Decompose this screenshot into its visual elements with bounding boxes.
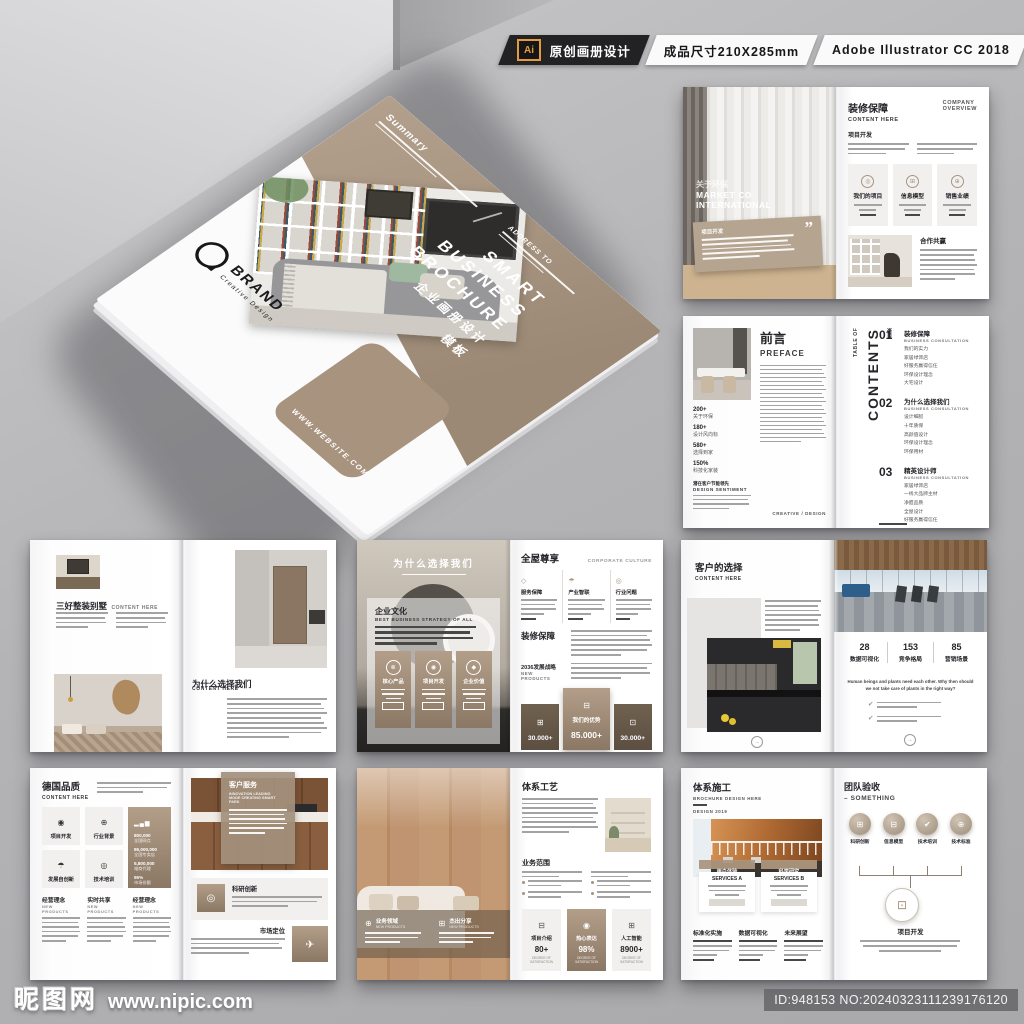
check-lines-2	[877, 716, 941, 725]
toc-big-label: CONTENTS	[865, 328, 881, 516]
scene: Ai 原创画册设计 成品尺寸210X285mm Adobe Illustrato…	[0, 0, 1024, 1024]
living-room-small-photo	[605, 798, 651, 852]
ribbon-size-tag: 成品尺寸210X285mm	[645, 35, 818, 65]
person-chat-icon: ◉	[583, 921, 590, 930]
col-3-title: 经营理念	[133, 895, 171, 904]
check-lines-1	[877, 702, 941, 711]
reading-chair-photo	[848, 235, 912, 287]
research-target-icon: ◎	[197, 884, 225, 912]
card-1-label: 核心产品	[375, 677, 411, 685]
craft-title: 体系工艺	[522, 780, 651, 793]
card-2-lines	[422, 689, 446, 700]
header-ribbon: Ai 原创画册设计 成品尺寸210X285mm Adobe Illustrato…	[504, 35, 1023, 65]
preface-page: 200+ 关于环保 180+ 设计风向标 580+ 选择到家 150% 科技化家…	[683, 316, 836, 528]
why-subtitle: CONTENT HERE	[192, 686, 239, 692]
toc-3-title: 精英设计师	[904, 465, 969, 475]
monitor-icon: ⊡	[629, 718, 636, 727]
partner-label: 合作共赢	[920, 235, 977, 245]
toc-1-title: 装修保障	[904, 328, 969, 338]
adv-col-2: 产业智联	[568, 588, 604, 596]
original-design-label: 原创画册设计	[550, 41, 631, 60]
team-icon: ◉	[58, 818, 65, 827]
services-a-button	[709, 899, 745, 906]
toc-2-bullet-5: 环保用材	[904, 448, 969, 455]
software-label: Adobe Illustrator CC 2018	[832, 43, 1010, 57]
check-item-2: ✔	[868, 714, 941, 725]
customer-service-page: 客户服务 INNOVATION LEADING MODE CREATING SM…	[183, 768, 336, 980]
toc-1-bullet-2: 家居绿饰店	[904, 354, 969, 361]
construction-sub1: BROCHURE DESIGN HERE	[693, 796, 822, 801]
network-icon: ⊕	[365, 919, 372, 928]
toc-1-bullet-4: 环保设计理念	[904, 371, 969, 378]
tree-connector	[844, 866, 977, 888]
sat-1-label: 项目介绍	[522, 935, 561, 942]
hierarchy-icon: ⊞	[628, 921, 635, 930]
team-icon-3-label: 技术培训	[911, 838, 943, 845]
stat-l3: 营销场景	[934, 654, 979, 663]
toc-3-bullet-1: 家居绿饰店	[904, 482, 969, 489]
caption-line-1: Human beings and plants need each other.…	[848, 679, 974, 684]
sat-2-label: 热心表达	[567, 935, 606, 942]
col-3-lines	[133, 917, 171, 942]
col-2-title: 实时共享	[87, 895, 125, 904]
villa-lines-b	[116, 612, 168, 631]
advantage-corner: CORPORATE CULTURE	[588, 559, 652, 564]
band-1-lines	[365, 932, 421, 943]
share-icon: ⊞	[439, 919, 446, 928]
page-arrow-button-2: →	[904, 734, 916, 746]
preface-credit: CREATIVE / DESIGN	[760, 511, 826, 516]
box-4-label: 技术培训	[85, 876, 123, 883]
project-icon: ◎	[861, 175, 874, 188]
feature-lines-2	[899, 204, 927, 211]
toc-3-bullet-2: 一线大品牌主材	[904, 490, 969, 497]
icon-box-project: ◉ 项目开发	[42, 807, 80, 845]
sentiment-block: 潜在客户节能领先 DESIGN SENTIMENT	[693, 481, 751, 509]
card-1-button	[382, 702, 404, 710]
spread-customer-choice: 客户的选择 CONTENT HERE →	[681, 540, 987, 752]
ribbon-software-tag: Adobe Illustrator CC 2018	[814, 35, 1024, 65]
preface-title-en: PREFACE	[760, 349, 826, 358]
team-acceptance-page: 团队验收 – SOMETHING ⊞ 科研创新 ⊟ 信息模型 ✔ 技术培训 ⊕ …	[834, 768, 987, 980]
quality-subtitle: CONTENT HERE	[42, 795, 89, 801]
feature-label-2: 信息模型	[893, 191, 933, 200]
page-arrow-button: →	[751, 736, 763, 748]
toc-2-sub: BUSINESS CONSULTATION	[904, 406, 969, 411]
advantage-page: 全屋尊享 CORPORATE CULTURE ◇ 服务保障 ☂ 产业智联 ◎	[510, 540, 663, 752]
team-icon-1-label: 科研创新	[844, 838, 876, 845]
toc-3-bullet-3: 净醛品质	[904, 499, 969, 506]
feature-lines-1	[854, 204, 882, 211]
stat-mid-label: 我们的优势	[563, 716, 609, 724]
sat-3-sub: DEGREE OF SATISFACTION	[612, 956, 651, 964]
toc-3-sub: BUSINESS CONSULTATION	[904, 475, 969, 480]
research-circle-icon: ⊞	[849, 813, 871, 835]
briefcase-node-icon: ⊡	[885, 888, 919, 922]
rocket-icon: ✈	[292, 926, 328, 962]
craft-lines	[522, 798, 598, 852]
scope-lines-a	[522, 871, 582, 877]
photo-overlay-caption: 关于环保 MARKET CO INTERNATIONAL	[696, 179, 771, 210]
stat-box-middle: ⊟ 我们的优势 85.000+	[563, 688, 609, 750]
positioning-row: 市场定位 ✈	[191, 926, 328, 970]
quote-box: 项目开发 ”	[693, 216, 823, 273]
stat-v3: 85	[934, 642, 979, 652]
toc-2-bullet-4: 环保设计理念	[904, 439, 969, 446]
gym-photo	[834, 540, 987, 632]
col-1-lines	[42, 917, 80, 942]
toc-2-bullet-2: 十年质保	[904, 422, 969, 429]
scope-bullet-b2	[597, 891, 651, 900]
node-label: 项目开发	[834, 926, 987, 936]
research-lines	[232, 896, 322, 907]
company-value-icon: ◆	[466, 660, 481, 675]
spread-construction-team: 体系施工 BROCHURE DESIGN HERE DESIGN 2019 用户…	[681, 768, 987, 980]
services-b-button	[771, 899, 807, 906]
toc-2-bullet-3: 高颜值设计	[904, 431, 969, 438]
col-2-lines	[87, 917, 125, 942]
watermark: 昵图网 www.nipic.com	[14, 980, 253, 1016]
sales-icon: ⊕	[951, 175, 964, 188]
quote-box-label: 项目开发	[701, 222, 813, 236]
service-overlay-card: 客户服务 INNOVATION LEADING MODE CREATING SM…	[221, 772, 295, 864]
wardrobe-photo-page: ⊕ 业务领域 NEW PRODUCTS ⊞ 杰出分享 NEW PRODUCTS	[357, 768, 510, 980]
stat-right-value: 30.000+	[614, 735, 652, 742]
model-circle-icon: ⊟	[883, 813, 905, 835]
question-icon: ◎	[616, 578, 622, 585]
tan-stat-4-label: 市场份额	[134, 880, 165, 886]
overlay-en-2: INTERNATIONAL	[696, 200, 771, 210]
philosophy-col-3: 经营理念 NEW PRODUCTS	[133, 895, 171, 945]
col-2-sub: NEW PRODUCTS	[87, 904, 125, 914]
scope-title: 业务范围	[522, 858, 651, 868]
quality-title: 德国品质	[42, 779, 89, 793]
satisfaction-card-1: ⊟ 项目介绍 80+ DEGREE OF SATISFACTION	[522, 909, 561, 971]
image-id-badge: ID:948153 NO:20240323111239176120	[764, 989, 1018, 1011]
choice-title: 客户的选择	[695, 560, 743, 574]
document-icon: ⊟	[583, 701, 590, 710]
card-project-dev: ◉ 项目开发	[415, 651, 451, 728]
dining-room-photo	[693, 328, 751, 400]
umbrella-icon: ☂	[57, 861, 64, 870]
strategy-lines	[571, 663, 652, 682]
feature-label-3: 销售业绩	[937, 191, 977, 200]
stat-visualization: 28 数据可视化	[842, 642, 887, 663]
stat-3-label: 选择到家	[693, 449, 751, 456]
strategy-label: 2036发展战略	[521, 663, 563, 671]
card-company-value: ◆ 企业价值	[456, 651, 492, 728]
ribbon-original-tag: Ai 原创画册设计	[498, 35, 650, 65]
project-dev-icon: ◉	[426, 660, 441, 675]
fcol-2-lines	[739, 945, 778, 956]
services-b-label: SERVICES B	[766, 876, 812, 882]
sentiment-en: DESIGN SENTIMENT	[693, 487, 751, 492]
card-3-label: 企业价值	[456, 677, 492, 685]
toc-1-bullet-1: 我们的实力	[904, 345, 969, 352]
band-1-title: 业务领域	[376, 917, 406, 925]
spread-villa-intro: 三好整装别墅 CONTENT HERE	[30, 540, 336, 752]
wall-corner-edge	[393, 0, 400, 70]
research-label: 科研创新	[232, 884, 322, 893]
intro-lines-a	[848, 143, 909, 157]
dark-kitchen-photo	[707, 638, 821, 732]
band-sharing: ⊞ 杰出分享 NEW PRODUCTS	[439, 917, 503, 951]
satisfaction-card-2: ◉ 热心表达 98% DEGREE OF SATISFACTION	[567, 909, 606, 971]
tab-science-research: 科学研究	[761, 860, 817, 869]
feature-card-projects: ◎ 我们的项目	[848, 164, 888, 226]
cover-website-text: WWW.WEBSITE.COM	[289, 407, 371, 477]
nipic-logo: 昵图网	[14, 980, 98, 1016]
quality-intro-lines	[97, 782, 171, 801]
adv-col-1-lines	[521, 599, 557, 615]
construction-sub2: DESIGN 2019	[693, 809, 822, 814]
bar-chart-icon: ▂▄▆	[134, 821, 150, 827]
choice-lines	[765, 600, 821, 634]
services-b-lines	[770, 885, 809, 896]
overlay-en-1: MARKET CO	[696, 190, 771, 200]
stat-v2: 153	[888, 642, 933, 652]
partner-lines	[920, 249, 977, 280]
card-2-button	[422, 702, 444, 710]
section-label: 项目开发	[848, 130, 977, 139]
curtain-room-photo: 关于环保 MARKET CO INTERNATIONAL 项目开发 ”	[683, 87, 836, 299]
positioning-label: 市场定位	[191, 926, 285, 935]
villa-title: 三好整装别墅	[56, 601, 107, 611]
spread-german-quality: 德国品质 CONTENT HERE ◉ 项目开发 ⊕ 行业背景	[30, 768, 336, 980]
card-1-lines	[381, 689, 405, 700]
page-title: 装修保障	[848, 100, 899, 115]
toc-cn-label: 目录	[887, 328, 893, 338]
hallway-photo	[235, 550, 327, 668]
adv-col-1: 服务保障	[521, 588, 557, 596]
band-2-lines	[439, 932, 495, 943]
services-card-a: SERVICES A	[699, 872, 755, 912]
intro-lines-b	[917, 143, 978, 157]
spread-company-overview: 关于环保 MARKET CO INTERNATIONAL 项目开发 ” 装修保障…	[683, 87, 989, 299]
card-3-button	[463, 702, 485, 710]
sat-3-value: 8900+	[612, 945, 651, 954]
model-icon: ⊞	[906, 175, 919, 188]
toc-1-bullet-3: 好服务赢得信任	[904, 362, 969, 369]
sat-1-sub: DEGREE OF SATISFACTION	[522, 956, 561, 964]
craft-page: 体系工艺 业务范围	[510, 768, 663, 980]
footer-col-future: 未来展望	[784, 928, 823, 964]
team-icon-training: ✔ 技术培训	[911, 813, 943, 845]
stat-box-left: ⊞ 30.000+	[521, 704, 559, 750]
scope-bullet-a1	[528, 880, 582, 889]
service-card-sub2: MODE CREATING SMART PARK	[229, 796, 287, 804]
research-row: ◎ 科研创新	[191, 878, 328, 920]
industry-icon: ☂	[568, 578, 574, 585]
service-icon: ◇	[521, 578, 526, 585]
services-a-lines	[708, 885, 747, 896]
villa-subtitle: CONTENT HERE	[111, 605, 158, 611]
tab-user-experience: 用户体验	[699, 860, 755, 869]
customer-choice-page: 客户的选择 CONTENT HERE →	[681, 540, 834, 752]
villa-page: 三好整装别墅 CONTENT HERE	[30, 540, 183, 752]
scope-bullet-a2	[528, 891, 582, 900]
box-1-label: 项目开发	[42, 833, 80, 840]
stat-competition: 153 竞争格局	[887, 642, 933, 663]
culture-overlay-panel: 企业文化 BEST BUSINESS STRATEGY OF ALL ⊗ 核心产…	[367, 598, 500, 744]
card-2-label: 项目开发	[415, 677, 451, 685]
icon-box-industry: ⊕ 行业背景	[85, 807, 123, 845]
guarantee-lines	[571, 630, 652, 659]
box-3-label: 发展自创新	[42, 876, 80, 883]
spread-craft-system: ⊕ 业务领域 NEW PRODUCTS ⊞ 杰出分享 NEW PRODUCTS	[357, 768, 663, 980]
stat-box-right: ⊡ 30.000+	[614, 704, 652, 750]
footer-col-data: 数据可视化	[739, 928, 778, 964]
gear-circle-icon: ⊕	[950, 813, 972, 835]
team-icon-research: ⊞ 科研创新	[844, 813, 876, 845]
band-2-title: 杰出分享	[449, 917, 479, 925]
team-icon-standard: ⊕ 技术标准	[945, 813, 977, 845]
adv-col-2-lines	[568, 599, 604, 615]
screens-icon: ⊟	[538, 921, 545, 930]
toc-small-label: TABLE OF	[853, 328, 859, 357]
market-stats-page: 28 数据可视化 153 竞争格局 85 营销场景 Human beings a…	[834, 540, 987, 752]
card-core-product: ⊗ 核心产品	[375, 651, 411, 728]
tan-stat-4: 95% 市场份额	[134, 875, 165, 886]
toc-2-bullet-1: 设计细腻	[904, 413, 969, 420]
service-card-lines	[229, 809, 287, 834]
tan-stat-3: 5,800,000 电商代理	[134, 861, 165, 872]
toc-1-bullet-5: 大宅设计	[904, 379, 969, 386]
card-3-lines	[462, 689, 486, 700]
caption-line-2: we not take care of plants in the right …	[866, 686, 956, 691]
tan-stat-3-label: 电商代理	[134, 866, 165, 872]
page-subtitle: CONTENT HERE	[848, 117, 899, 123]
overlay-cn: 关于环保	[696, 179, 771, 190]
photo-overlay-band: ⊕ 业务领域 NEW PRODUCTS ⊞ 杰出分享 NEW PRODUCTS	[357, 910, 510, 958]
adv-col-3: 行业问题	[616, 588, 652, 596]
tan-stat-1: 800,000 全国网点	[134, 833, 165, 844]
choice-subtitle: CONTENT HERE	[695, 576, 743, 582]
stats-tan-box: ▂▄▆ 800,000 全国网点 86,000,000 全国专卖店 5,800,…	[128, 807, 171, 888]
advantage-title: 全屋尊享	[521, 551, 559, 565]
overview-page: 装修保障 CONTENT HERE COMPANY OVERVIEW 项目开发 …	[836, 87, 989, 299]
team-icon-4-label: 技术标准	[945, 838, 977, 845]
magnifier-icon: ⊕	[101, 818, 108, 827]
stat-left-value: 30.000+	[521, 735, 559, 742]
why-choose-page: 为什么选择我们 CONTENT HERE	[183, 540, 336, 752]
col-1-sub: NEW PRODUCTS	[42, 904, 80, 914]
spread-preface-contents: 200+ 关于环保 180+ 设计风向标 580+ 选择到家 150% 科技化家…	[683, 316, 989, 528]
feature-label-1: 我们的项目	[848, 191, 888, 200]
quote-mark: ”	[804, 218, 814, 238]
sat-1-value: 80+	[522, 945, 561, 954]
stat-1: 200+ 关于环保	[693, 407, 751, 420]
sat-2-sub: DEGREE OF SATISFACTION	[567, 956, 606, 964]
culture-overlay-title: 为什么选择我们	[357, 556, 510, 570]
chart-up-icon: ⊞	[537, 718, 544, 727]
node-lines	[860, 940, 960, 955]
fcol-1-title: 标准化实施	[693, 928, 732, 937]
band-business-area: ⊕ 业务领域 NEW PRODUCTS	[365, 917, 429, 951]
col-3-sub: NEW PRODUCTS	[133, 904, 171, 914]
band-1-sub: NEW PRODUCTS	[376, 925, 406, 929]
finished-size-label: 成品尺寸210X285mm	[664, 41, 799, 60]
preface-body-lines	[760, 365, 826, 445]
scope-bullet-b1	[597, 880, 651, 889]
corner-label-2: OVERVIEW	[943, 106, 977, 112]
icon-box-innovation: ☂ 发展自创新	[42, 850, 80, 888]
sat-2-value: 98%	[567, 945, 606, 954]
team-icon-2-label: 信息模型	[878, 838, 910, 845]
culture-section-sub: BEST BUSINESS STRATEGY OF ALL	[375, 617, 492, 622]
stat-l2: 竞争格局	[888, 654, 933, 663]
culture-photo-page: 为什么选择我们 企业文化 BEST BUSINESS STRATEGY OF A…	[357, 540, 510, 752]
check-item-1: ✔	[868, 700, 941, 711]
positioning-lines	[191, 938, 285, 954]
toc-2-title: 为什么选择我们	[904, 396, 969, 406]
feature-lines-3	[943, 204, 971, 211]
strategy-sub: NEW PRODUCTS	[521, 671, 563, 681]
feature-card-sales: ⊕ 销售业绩	[937, 164, 977, 226]
icon-box-training: ◎ 技术培训	[85, 850, 123, 888]
stat-4: 150% 科技化家装	[693, 461, 751, 474]
stat-v1: 28	[842, 642, 887, 652]
team-title: 团队验收	[844, 780, 977, 793]
stat-1-label: 关于环保	[693, 413, 751, 420]
construction-title: 体系施工	[693, 780, 822, 794]
philosophy-col-1: 经营理念 NEW PRODUCTS	[42, 895, 80, 945]
feature-card-model: ⊞ 信息模型	[893, 164, 933, 226]
stat-3: 580+ 选择到家	[693, 443, 751, 456]
services-card-b: SERVICES B	[761, 872, 817, 912]
stat-l1: 数据可视化	[842, 654, 887, 663]
check-icon-2: ✔	[868, 714, 873, 725]
sat-3-label: 人工智能	[612, 935, 651, 942]
guarantee-label: 装修保障	[521, 630, 563, 659]
scope-lines-b	[591, 871, 651, 877]
culture-section: 企业文化	[375, 606, 492, 617]
culture-dark-lines	[375, 626, 476, 645]
contents-page: TABLE OF CONTENTS 目录 01 装修保障 BUSINESS CO…	[836, 316, 989, 528]
stat-marketing: 85 营销场景	[933, 642, 979, 663]
col-1-title: 经营理念	[42, 895, 80, 904]
stat-2: 180+ 设计风向标	[693, 425, 751, 438]
services-a-label: SERVICES A	[704, 876, 750, 882]
tan-stat-2: 86,000,000 全国专卖店	[134, 847, 165, 858]
stat-4-label: 科技化家装	[693, 467, 751, 474]
quote-box-lines	[702, 234, 795, 260]
adobe-illustrator-icon: Ai	[517, 39, 541, 61]
fcol-3-lines	[784, 945, 823, 956]
stat-mid-value: 85.000+	[563, 730, 609, 740]
target-icon: ◎	[101, 861, 108, 870]
adv-col-3-lines	[616, 599, 652, 615]
service-card-title: 客户服务	[229, 780, 287, 790]
study-photo	[56, 555, 100, 589]
fcol-1-lines	[693, 945, 732, 956]
toc-3-bullet-5: 好服务赢得信任	[904, 516, 969, 523]
satisfaction-card-3: ⊞ 人工智能 8900+ DEGREE OF SATISFACTION	[612, 909, 651, 971]
footer-col-standard: 标准化实施	[693, 928, 732, 964]
toc-1-sub: BUSINESS CONSULTATION	[904, 338, 969, 343]
bedroom-photo	[54, 674, 162, 752]
philosophy-col-2: 实时共享 NEW PRODUCTS	[87, 895, 125, 945]
fcol-2-title: 数据可视化	[739, 928, 778, 937]
why-lines	[227, 698, 327, 741]
nipic-url: www.nipic.com	[108, 991, 253, 1014]
german-quality-page: 德国品质 CONTENT HERE ◉ 项目开发 ⊕ 行业背景	[30, 768, 183, 980]
spread-culture-advantage: 为什么选择我们 企业文化 BEST BUSINESS STRATEGY OF A…	[357, 540, 663, 752]
fcol-3-title: 未来展望	[784, 928, 823, 937]
check-circle-icon: ✔	[916, 813, 938, 835]
tan-stat-1-label: 全国网点	[134, 838, 165, 844]
band-2-sub: NEW PRODUCTS	[449, 925, 479, 929]
